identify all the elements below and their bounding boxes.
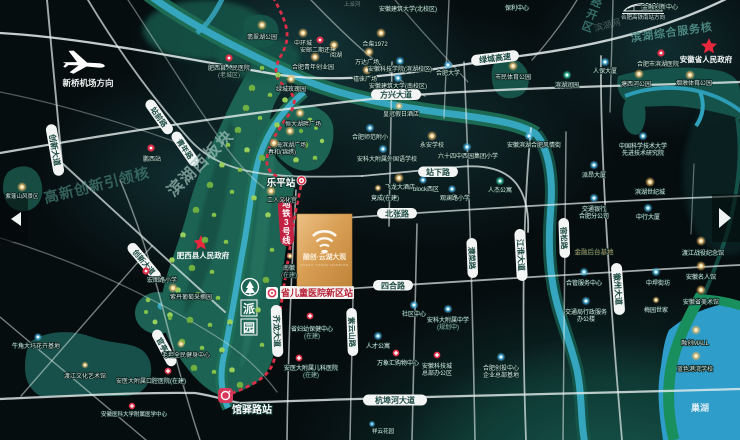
svg-text:鹏西站: 鹏西站	[143, 155, 161, 163]
svg-text:毛坦全民健身中心: 毛坦全民健身中心	[162, 351, 210, 359]
svg-text:安徽科技学院(滨湖校区): 安徽科技学院(滨湖校区)	[368, 65, 432, 73]
svg-text:先进技术研究院: 先进技术研究院	[622, 149, 664, 157]
svg-text:肥西县人民医院: 肥西县人民医院	[208, 64, 250, 72]
svg-text:园: 园	[243, 321, 255, 335]
svg-text:安徽建筑大学(南校区): 安徽建筑大学(南校区)	[369, 82, 427, 90]
svg-text:齐龙大道: 齐龙大道	[271, 314, 282, 347]
svg-text:滨湖润园: 滨湖润园	[555, 81, 579, 89]
svg-text:中垾街坊: 中垾街坊	[646, 279, 670, 287]
svg-text:安科大附属外国语学校: 安科大附属外国语学校	[357, 155, 417, 163]
svg-text:濮菜路: 濮菜路	[467, 247, 478, 270]
svg-text:合肥师范附小: 合肥师范附小	[352, 133, 388, 141]
svg-text:合肥青年创业园: 合肥青年创业园	[292, 63, 334, 71]
svg-text:安徽省人民政府: 安徽省人民政府	[680, 54, 733, 64]
svg-text:飞龙大酒店: 飞龙大酒店	[385, 183, 415, 191]
svg-text:中国科学技术大学: 中国科学技术大学	[619, 142, 667, 150]
svg-text:block西区: block西区	[413, 186, 439, 193]
svg-text:金融后台基地: 金融后台基地	[575, 247, 615, 256]
svg-text:人杰公寓: 人杰公寓	[488, 186, 512, 194]
svg-text:宿松路: 宿松路	[559, 227, 570, 250]
svg-text:人保大厦: 人保大厦	[593, 67, 617, 75]
svg-text:宏图路小学: 宏图路小学	[147, 276, 177, 284]
svg-text:合肥大学: 合肥大学	[436, 69, 460, 77]
svg-text:企业总部基地: 企业总部基地	[483, 371, 519, 379]
svg-text:合柴1972: 合柴1972	[362, 40, 388, 48]
svg-text:站下路: 站下路	[426, 167, 451, 177]
svg-text:(规划中): (规划中)	[437, 323, 459, 331]
svg-text:安徽名人馆: 安徽名人馆	[686, 273, 716, 281]
svg-text:安医大附属口腔医院(在建): 安医大附属口腔医院(在建)	[116, 377, 186, 385]
svg-text:交通银行: 交通银行	[582, 205, 606, 213]
svg-text:江淮大道: 江淮大道	[515, 239, 527, 271]
svg-text:上派河: 上派河	[344, 0, 361, 8]
svg-text:观澜路小学: 观澜路小学	[440, 194, 470, 202]
svg-text:合肥高铁南站方向: 合肥高铁南站方向	[621, 13, 665, 21]
svg-text:安徽建筑大学(北校区): 安徽建筑大学(北校区)	[379, 5, 437, 13]
svg-text:翡翠湖公园: 翡翠湖公园	[247, 33, 277, 41]
svg-text:合肥分公司: 合肥分公司	[579, 212, 609, 220]
svg-text:社区中心: 社区中心	[402, 310, 426, 318]
svg-text:人才公寓: 人才公寓	[366, 342, 390, 350]
svg-text:竟成(在建): 竟成(在建)	[371, 194, 399, 202]
svg-text:馆驿路站: 馆驿路站	[232, 403, 272, 416]
svg-text:绿城玫瑰园: 绿城玫瑰园	[276, 85, 306, 93]
svg-text:牛角大圩花卉基地: 牛角大圩花卉基地	[12, 342, 60, 350]
svg-text:禧徕广场: 禧徕广场	[353, 75, 377, 83]
svg-text:南徽: 南徽	[283, 264, 295, 272]
svg-text:交通局行政服务: 交通局行政服务	[565, 308, 607, 316]
svg-text:四合路: 四合路	[381, 280, 406, 290]
svg-text:合肥市滨湖医院: 合肥市滨湖医院	[637, 60, 679, 68]
svg-text:杭埠河大道: 杭埠河大道	[375, 395, 415, 405]
svg-text:新桥机场方向: 新桥机场方向	[62, 78, 113, 88]
svg-text:融创·云湖大观: 融创·云湖大观	[303, 252, 346, 261]
svg-text:巢湖: 巢湖	[690, 402, 709, 413]
svg-text:紫蓬山风景区: 紫蓬山风景区	[5, 192, 39, 200]
svg-text:(在建): (在建)	[304, 332, 320, 340]
svg-text:安徽医科大学附属医学中心: 安徽医科大学附属医学中心	[101, 410, 168, 418]
svg-text:工人文化宫: 工人文化宫	[267, 196, 297, 204]
svg-text:春和(锦绣): 春和(锦绣)	[268, 148, 296, 156]
svg-text:金融创新中心: 金融创新中心	[642, 3, 678, 11]
svg-text:融创MALL: 融创MALL	[681, 339, 709, 347]
svg-text:方兴大道: 方兴大道	[380, 90, 412, 100]
svg-text:滨湖世纪城: 滨湖世纪城	[635, 188, 665, 196]
svg-text:办公楼: 办公楼	[577, 315, 595, 323]
svg-text:蓝色港湾学校: 蓝色港湾学校	[677, 365, 713, 373]
svg-text:肥西县人民政府: 肥西县人民政府	[177, 250, 230, 260]
svg-text:六十四中西园集团小学: 六十四中西园集团小学	[438, 152, 498, 160]
svg-text:万达广场: 万达广场	[355, 58, 379, 66]
svg-text:省妇幼保健中心: 省妇幼保健中心	[291, 325, 333, 333]
svg-text:(老城区): (老城区)	[218, 71, 240, 79]
svg-text:总部办公区: 总部办公区	[422, 369, 452, 377]
svg-text:(在建): (在建)	[281, 271, 297, 279]
svg-text:合肥创投中心: 合肥创投中心	[483, 364, 519, 372]
svg-text:安徽科技城: 安徽科技城	[422, 362, 452, 370]
svg-text:合管服务中心: 合管服务中心	[566, 279, 602, 287]
svg-text:紫云山路: 紫云山路	[347, 317, 358, 348]
svg-text:紫丹葡萄采摘园: 紫丹葡萄采摘园	[170, 293, 212, 301]
svg-text:安徽滨湖合肥风情街: 安徽滨湖合肥风情街	[507, 141, 561, 149]
svg-text:中环城: 中环城	[294, 39, 312, 47]
svg-text:北张路: 北张路	[385, 208, 410, 218]
svg-text:保利中心: 保利中心	[505, 4, 529, 12]
svg-text:梅园世家: 梅园世家	[644, 306, 668, 314]
svg-text:阅湖: 阅湖	[330, 51, 342, 59]
svg-text:万象汇购物中心: 万象汇购物中心	[377, 359, 419, 367]
svg-text:皇冠假日酒店: 皇冠假日酒店	[383, 110, 419, 118]
svg-text:安科大附属中学: 安科大附属中学	[427, 316, 469, 324]
svg-text:渡江文化艺术馆: 渡江文化艺术馆	[64, 372, 106, 380]
svg-text:省儿童医院新区站: 省儿童医院新区站	[280, 287, 353, 298]
svg-text:安徽省美术馆: 安徽省美术馆	[683, 298, 719, 306]
svg-text:祥云花园: 祥云花园	[372, 427, 395, 435]
svg-text:中行大厦: 中行大厦	[636, 213, 660, 221]
svg-text:SUNAC YUNHU MANSION: SUNAC YUNHU MANSION	[300, 263, 348, 267]
svg-text:安医大附属儿科医院: 安医大附属儿科医院	[284, 364, 338, 372]
svg-text:派: 派	[243, 302, 256, 316]
svg-text:派昂大厦: 派昂大厦	[582, 171, 606, 179]
svg-text:永安学校: 永安学校	[420, 141, 444, 149]
svg-text:渡江战役纪念馆: 渡江战役纪念馆	[682, 249, 724, 257]
svg-text:烟墩体育公园: 烟墩体育公园	[676, 79, 712, 87]
svg-text:市民体育公园: 市民体育公园	[495, 73, 531, 81]
svg-text:塘西河公园: 塘西河公园	[621, 80, 651, 88]
svg-text:(在建): (在建)	[303, 371, 319, 379]
